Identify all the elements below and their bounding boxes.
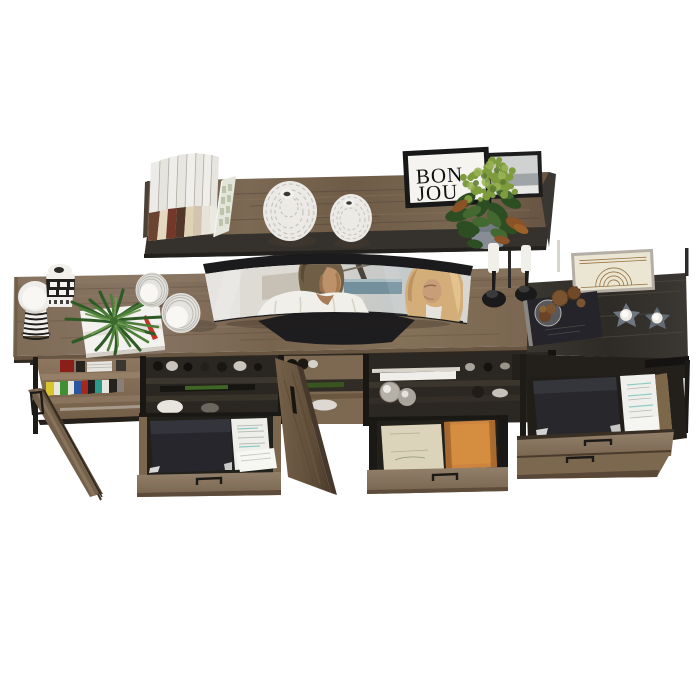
svg-text:JOU: JOU <box>416 179 459 205</box>
